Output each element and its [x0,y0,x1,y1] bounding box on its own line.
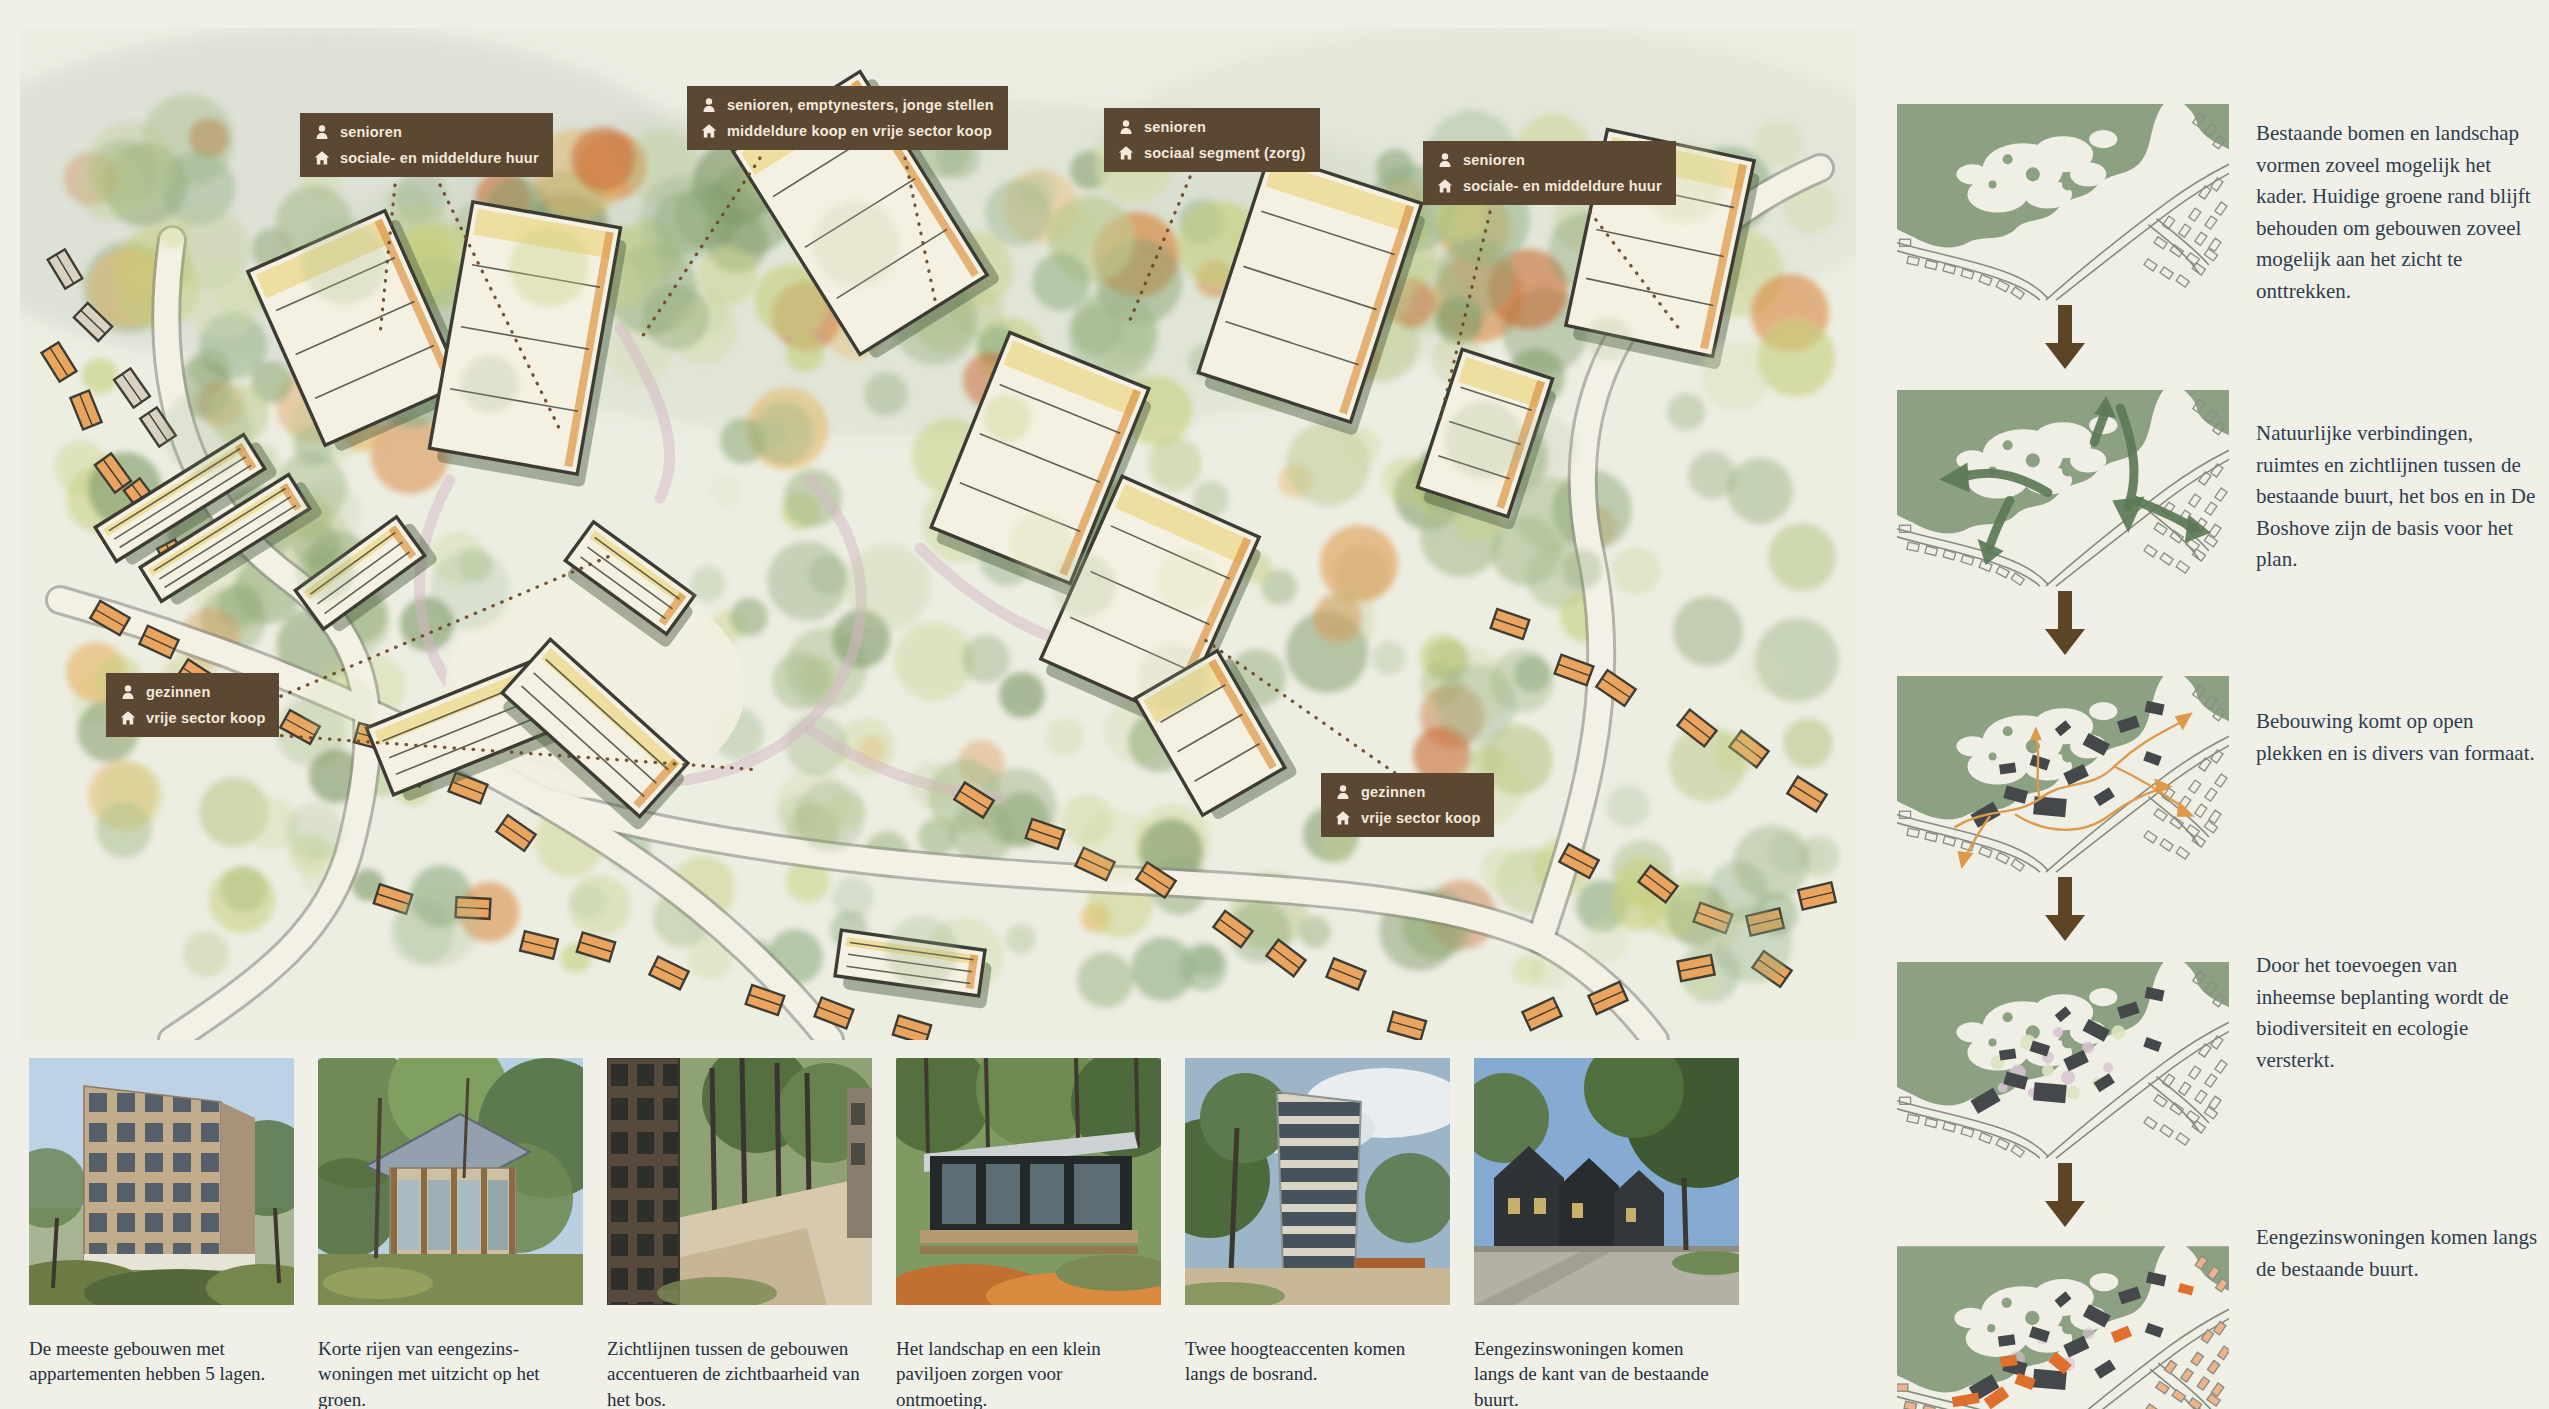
label-text: vrije sector koop [146,710,265,726]
person-icon [701,97,717,113]
label-text: gezinnen [146,684,210,700]
label-text: sociale- en middeldure huur [340,150,539,166]
label-row-segment: sociale- en middeldure huur [314,150,539,166]
label-row-target-group: senioren [1118,119,1306,135]
photo-street-houses [1474,1058,1739,1305]
label-row-segment: vrije sector koop [120,710,265,726]
house-icon [1437,178,1453,194]
arrow-down-icon [2043,877,2087,943]
label-row-segment: middeldure koop en vrije sector koop [701,123,994,139]
step-text-3: Bebouwing komt op open plekken en is div… [2256,706,2538,769]
house-icon [120,710,136,726]
diagram-step-4-native-planting [1897,950,2229,1160]
diagram-step-2-natural-connections [1897,378,2229,588]
house-icon [1335,810,1351,826]
house-icon [701,123,717,139]
label-row-segment: sociaal segment (zorg) [1118,145,1306,161]
step-text-2: Natuurlijke verbindingen, ruimtes en zic… [2256,418,2538,576]
person-icon [120,684,136,700]
map-label-senioren-huur-2: senioren sociale- en middeldure huur [1423,141,1676,205]
label-text: senioren, emptynesters, jonge stellen [727,97,994,113]
photo-sightline-forest [607,1058,872,1305]
label-row-segment: sociale- en middeldure huur [1437,178,1662,194]
label-text: senioren [1144,119,1206,135]
photo-caption-5: Twee hoogteaccenten komen langs de bosra… [1185,1336,1439,1387]
map-label-gezinnen-1: gezinnen vrije sector koop [106,673,279,737]
person-icon [1437,152,1453,168]
label-row-target-group: gezinnen [120,684,265,700]
house-icon [1118,145,1134,161]
label-text: middeldure koop en vrije sector koop [727,123,992,139]
label-text: sociale- en middeldure huur [1463,178,1662,194]
label-row-target-group: senioren [314,124,539,140]
photo-pavilion [896,1058,1161,1305]
label-text: sociaal segment (zorg) [1144,145,1306,161]
step-text-1: Bestaande bomen en landschap vormen zove… [2256,118,2538,307]
map-label-senioren-zorg: senioren sociaal segment (zorg) [1104,108,1320,172]
diagram-step-3-buildings-open-spots [1897,664,2229,874]
map-label-mixed-koop: senioren, emptynesters, jonge stellen mi… [687,86,1008,150]
photo-caption-6: Eengezinswoningen komen langs de kant va… [1474,1336,1728,1409]
arrow-down-icon [2043,1163,2087,1229]
map-label-senioren-huur-1: senioren sociale- en middeldure huur [300,113,553,177]
label-text: senioren [340,124,402,140]
diagram-step-5-family-homes [1897,1236,2229,1409]
photo-caption-3: Zichtlijnen tussen de gebouwen accentuer… [607,1336,861,1409]
label-row-target-group: senioren, emptynesters, jonge stellen [701,97,994,113]
map-label-gezinnen-2: gezinnen vrije sector koop [1321,773,1494,837]
person-icon [1118,119,1134,135]
photo-caption-1: De meeste gebouwen met appartementen heb… [29,1336,283,1387]
label-text: gezinnen [1361,784,1425,800]
person-icon [1335,784,1351,800]
photo-family-house [318,1058,583,1305]
arrow-down-icon [2043,591,2087,657]
photo-tower-accent [1185,1058,1450,1305]
step-text-4: Door het toevoegen van inheemse beplanti… [2256,950,2538,1076]
label-text: senioren [1463,152,1525,168]
photo-caption-2: Korte rijen van eengezins-woningen met u… [318,1336,572,1409]
arrow-down-icon [2043,305,2087,371]
label-text: vrije sector koop [1361,810,1480,826]
step-text-5: Eengezinswoningen komen langs de bestaan… [2256,1222,2538,1285]
photo-caption-4: Het landschap en een klein paviljoen zor… [896,1336,1150,1409]
label-row-target-group: senioren [1437,152,1662,168]
photo-apartment-building [29,1058,294,1305]
presentation-board: senioren sociale- en middeldure huur sen… [0,0,2549,1409]
label-row-target-group: gezinnen [1335,784,1480,800]
diagram-step-1-existing-landscape [1897,92,2229,302]
label-row-segment: vrije sector koop [1335,810,1480,826]
house-icon [314,150,330,166]
person-icon [314,124,330,140]
